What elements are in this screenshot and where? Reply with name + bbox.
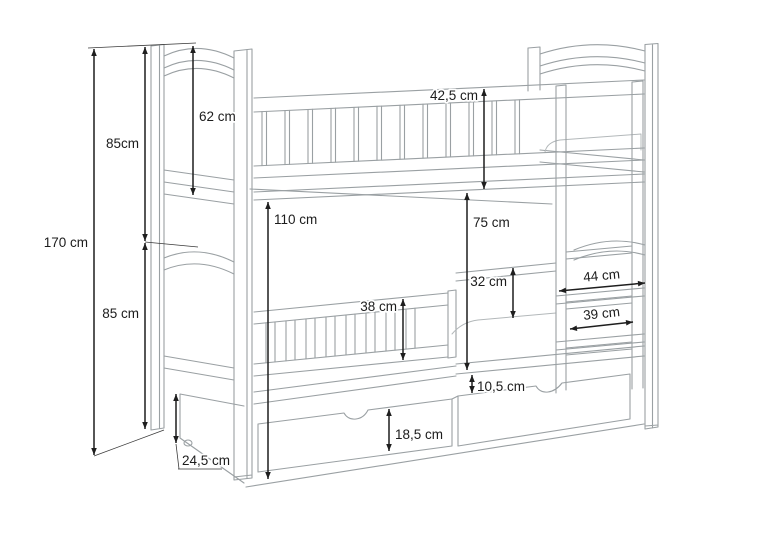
extension-lines — [88, 43, 222, 469]
right-headboard — [528, 44, 658, 430]
drawer-divider — [452, 396, 458, 399]
dim-upper-guardrail-label: 42,5 cm — [430, 88, 478, 103]
top-extension-line — [88, 43, 196, 48]
dim-under-bed-gap-label: 10,5 cm — [477, 379, 525, 394]
lower-guardrail — [254, 290, 456, 376]
left-front-post — [234, 49, 252, 480]
bed-bottom-edge — [246, 424, 644, 487]
mid-extension-line — [145, 242, 198, 247]
dim-upper-headboard-label: 62 cm — [199, 109, 236, 124]
dim-drawer-front-label: 18,5 cm — [395, 427, 443, 442]
dim-upper-section-height: 85cm — [106, 47, 145, 241]
floor-extension-line — [94, 430, 164, 456]
bunk-bed-drawing: 170 cm 85cm 85 cm 62 cm 110 cm 42,5 cm — [0, 0, 768, 543]
ladder-left-rail — [556, 85, 566, 393]
lower-guardrail-rails — [254, 293, 448, 376]
dim-lower-guardrail-gap: 32 cm — [470, 268, 513, 318]
dim-under-bed-gap: 10,5 cm — [472, 375, 525, 394]
right-front-post — [645, 44, 658, 430]
dim-upper-section-label: 85cm — [106, 136, 139, 151]
right-headboard-arch — [540, 45, 645, 74]
dim-drawer-front-height: 18,5 cm — [389, 409, 443, 451]
diagram-canvas: 170 cm 85cm 85 cm 62 cm 110 cm 42,5 cm — [0, 0, 768, 543]
dim-upper-platform-label: 110 cm — [274, 212, 317, 227]
dim-lower-guardrail-height: 38 cm — [360, 299, 403, 360]
upper-platform-back-edge — [250, 189, 552, 204]
left-lower-headboard-arch — [164, 252, 234, 274]
lower-frame-left — [254, 366, 456, 404]
dim-bunk-clearance-label: 75 cm — [473, 215, 510, 230]
left-headboard-rails — [164, 170, 234, 204]
lower-guardrail-slats — [266, 308, 415, 363]
dim-foot-clearance-label: 24,5 cm — [182, 453, 230, 468]
lower-guardrail-end-frame — [448, 290, 456, 358]
dim-ladder-outer-width-label: 44 cm — [583, 266, 621, 284]
under-bed-drawers — [246, 374, 644, 487]
dim-lower-section-height: 85 cm — [102, 243, 145, 429]
left-back-post — [151, 45, 164, 431]
dim-lower-guardrail-label: 38 cm — [360, 299, 397, 314]
dim-foot-clearance: 24,5 cm — [176, 394, 230, 468]
dim-ladder-inner-width-label: 39 cm — [582, 304, 620, 323]
dim-total-height-label: 170 cm — [44, 235, 88, 250]
dim-total-height: 170 cm — [44, 49, 94, 455]
left-lower-rails — [164, 356, 234, 380]
dim-lower-section-label: 85 cm — [102, 306, 139, 321]
left-headboard-arch — [164, 48, 234, 78]
dim-lower-guardrail-gap-label: 32 cm — [470, 274, 507, 289]
